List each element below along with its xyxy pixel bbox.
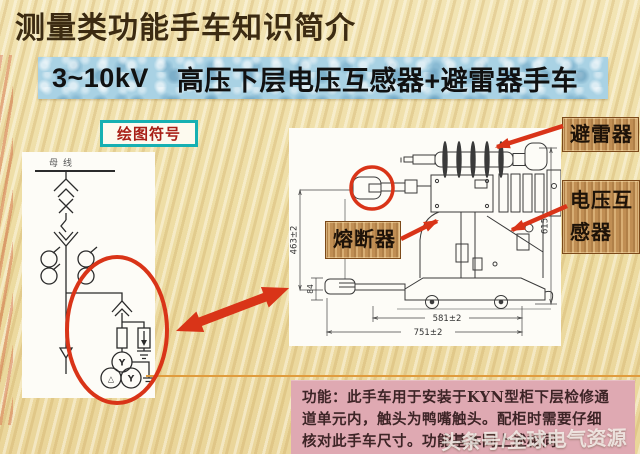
subtitle-voltage: 3~10kV bbox=[52, 63, 149, 94]
slide: 测量类功能手车知识简介 3~10kV 高压下层电压互感器+避雷器手车 绘图符号 … bbox=[0, 0, 640, 454]
drawing-symbol-badge: 绘图符号 bbox=[100, 120, 198, 147]
current-transformer-right bbox=[78, 247, 97, 284]
voltage-transformer-label: 电压互 感器 bbox=[562, 180, 640, 254]
page-title: 测量类功能手车知识简介 bbox=[15, 3, 356, 47]
vt-winding-right: Y bbox=[127, 375, 135, 385]
circuit-diagram: 母线 bbox=[22, 152, 155, 398]
dim-height-right: 615 bbox=[541, 218, 551, 234]
earth-arrow-symbol bbox=[60, 348, 72, 374]
dim-width-outer: 751±2 bbox=[414, 328, 443, 338]
arrester-symbol bbox=[137, 328, 151, 359]
branch-contact-symbol bbox=[112, 301, 132, 322]
background-texture bbox=[0, 55, 13, 425]
fuse-label: 熔断器 bbox=[325, 221, 401, 259]
current-transformer-left bbox=[41, 247, 60, 284]
cart-chassis bbox=[397, 278, 553, 309]
dim-height-left: 463±2 bbox=[290, 226, 300, 255]
circuit-lines bbox=[35, 171, 155, 388]
drawing-symbol-badge-label: 绘图符号 bbox=[103, 123, 195, 144]
mounting-assembly bbox=[431, 170, 561, 216]
divider-line bbox=[146, 375, 640, 377]
double-arrow bbox=[172, 278, 293, 342]
dim-contact: 84 bbox=[306, 284, 315, 294]
vt-winding-left: △ bbox=[108, 375, 115, 384]
arrester-part bbox=[401, 141, 547, 178]
vt-branch-line bbox=[66, 293, 122, 301]
duckbill-contact-lower bbox=[325, 279, 405, 294]
watermark: 头条号/全球电气资源 bbox=[441, 422, 627, 454]
fuse-symbol bbox=[117, 322, 127, 352]
function-line-1: 功能：此手车用于安装于KYN型柜下层检修通 bbox=[302, 387, 627, 409]
arrester-label: 避雷器 bbox=[562, 117, 639, 152]
dim-width-inner: 581±2 bbox=[433, 314, 462, 324]
circuit-diagram-panel: 母线 bbox=[22, 152, 155, 398]
busbar-label: 母线 bbox=[49, 157, 77, 169]
subtitle-text: 高压下层电压互感器+避雷器手车 bbox=[177, 59, 578, 98]
cart-body bbox=[420, 212, 543, 278]
lower-drawout-contact-symbol bbox=[54, 220, 78, 246]
upper-drawout-contact-symbol bbox=[54, 179, 78, 213]
vt-winding-top: Y bbox=[118, 359, 126, 369]
subtitle-banner: 3~10kV 高压下层电压互感器+避雷器手车 bbox=[38, 57, 608, 99]
